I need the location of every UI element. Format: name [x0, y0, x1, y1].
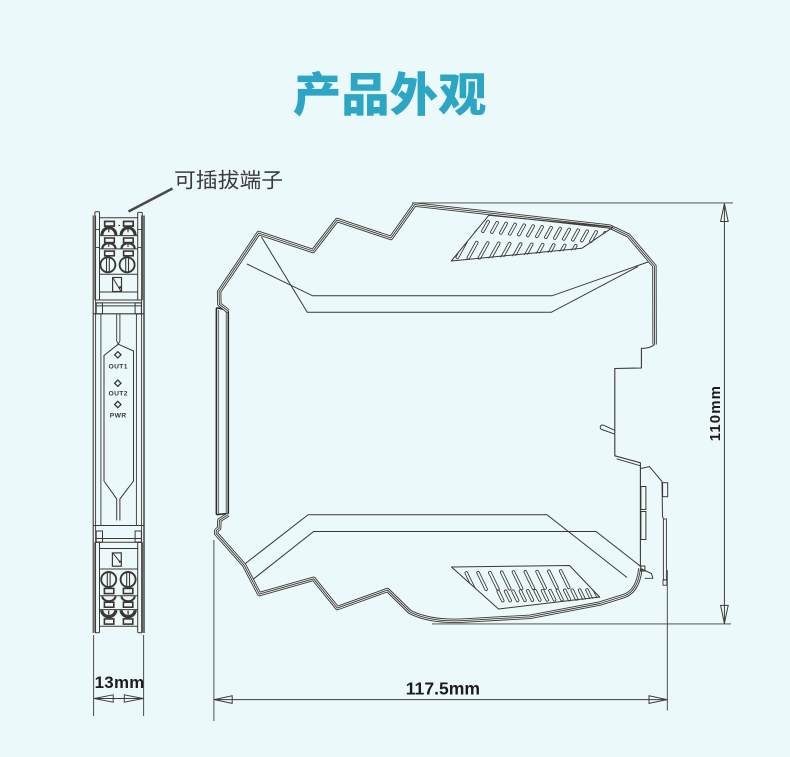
- svg-text:OUT1: OUT1: [108, 364, 127, 371]
- svg-text:13mm: 13mm: [95, 673, 145, 692]
- svg-text:117.5mm: 117.5mm: [406, 679, 480, 699]
- svg-text:PWR: PWR: [110, 412, 127, 419]
- svg-text:OUT2: OUT2: [108, 391, 127, 398]
- svg-text:110mm: 110mm: [707, 385, 724, 441]
